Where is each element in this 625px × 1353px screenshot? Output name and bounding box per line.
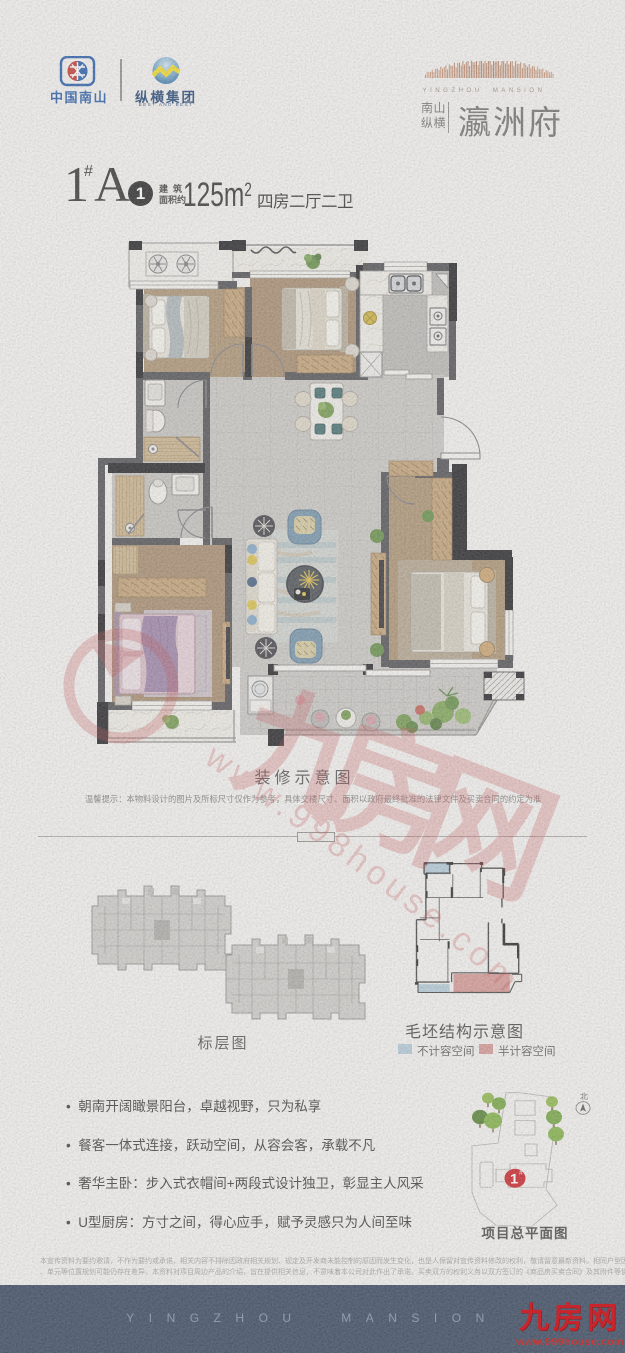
svg-text:#: # xyxy=(519,1170,523,1177)
svg-text:1: 1 xyxy=(510,1172,518,1187)
svg-text:北: 北 xyxy=(580,1092,588,1101)
